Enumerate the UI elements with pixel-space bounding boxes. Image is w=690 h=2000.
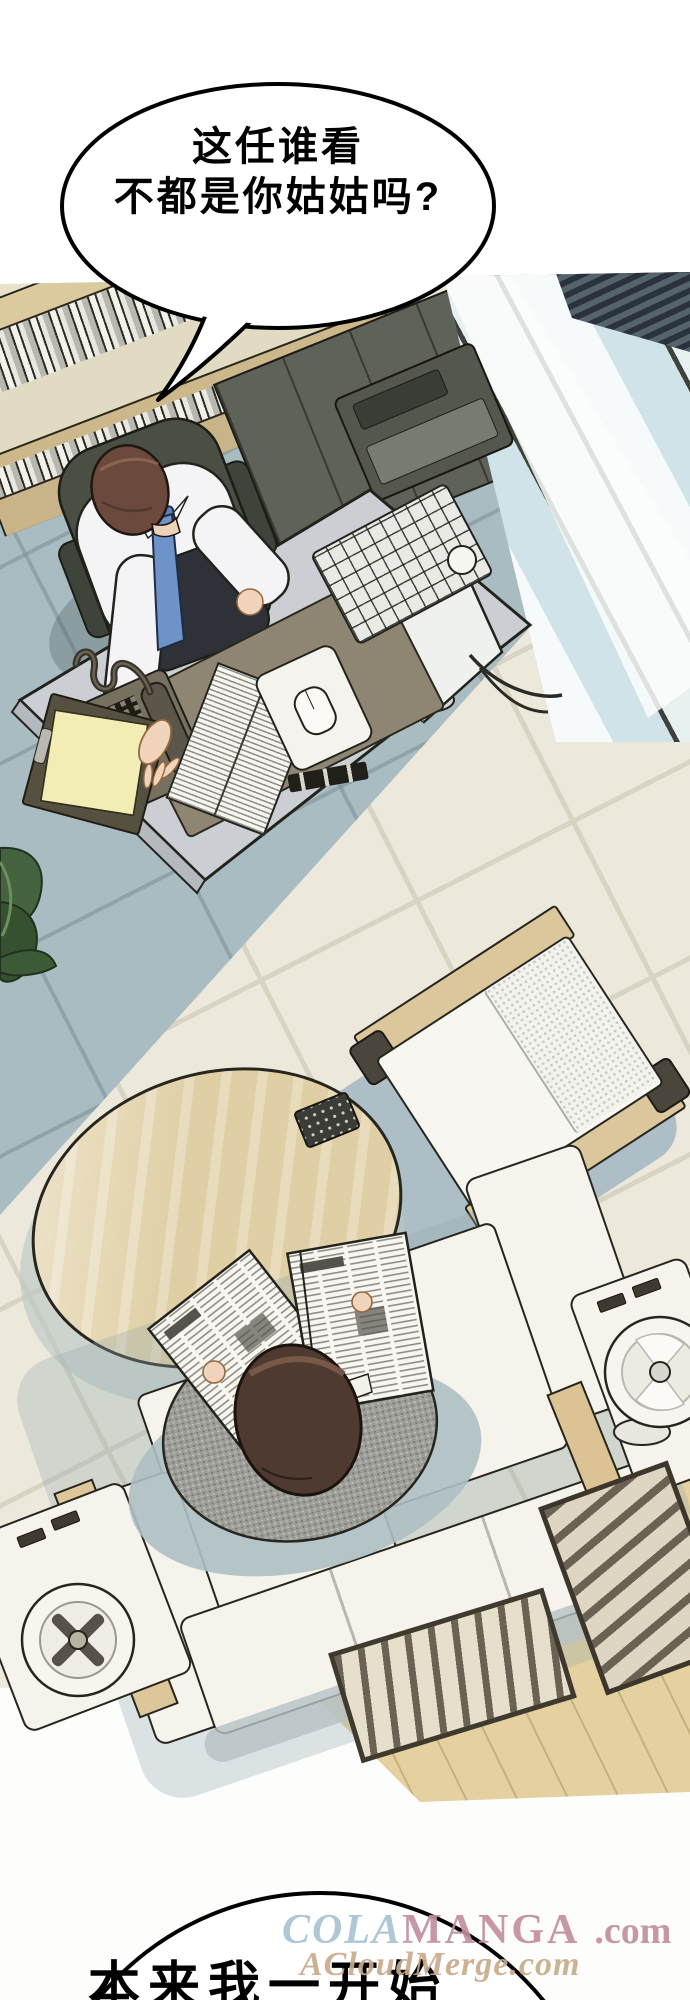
bubble-top-line-1: 这任谁看 — [58, 122, 498, 172]
yellow-notepad — [40, 709, 150, 817]
side-table-left-handle-2 — [50, 1510, 80, 1531]
desk-newspaper-fold — [214, 682, 267, 815]
watermark-domain: .com — [594, 1910, 671, 1952]
office-scene — [0, 0, 690, 2000]
cup — [447, 545, 477, 575]
side-table-right-handle-2 — [631, 1277, 661, 1298]
comic-page: 这任谁看 不都是你姑姑吗? 本来我一开始 COLAMANGA.com AClou… — [0, 0, 690, 2000]
bubble-top-line-2: 不都是你姑姑吗? — [58, 172, 498, 222]
side-table-right-handle-1 — [596, 1292, 626, 1313]
computer-mouse — [289, 681, 342, 740]
watermark-acloudmerge: ACloudMerge.com — [300, 1946, 580, 1984]
side-table-left-handle-1 — [16, 1527, 46, 1548]
speech-bubble-top-text: 这任谁看 不都是你姑姑吗? — [58, 122, 498, 222]
